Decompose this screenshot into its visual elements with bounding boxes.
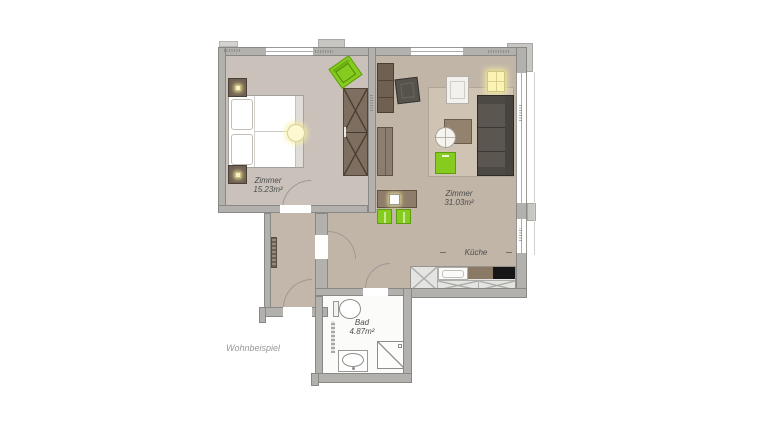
kitchen-label-dash [440, 252, 446, 253]
kitchen-label-dash [506, 252, 512, 253]
ceiling-lamp [287, 124, 305, 142]
coffee-table [435, 127, 456, 148]
window-bedroom-top [266, 47, 313, 56]
pillow [231, 99, 253, 130]
dimension-marks [519, 228, 522, 241]
kitchen-sink [438, 267, 468, 280]
floor-lamp [487, 71, 505, 92]
living-room-name: Zimmer [429, 189, 489, 198]
bedroom-room-area: 15.23m² [238, 185, 298, 194]
basin-bowl [342, 353, 364, 367]
bath-radiator [331, 321, 335, 353]
shelf-line [378, 97, 393, 98]
dimension-marks [224, 49, 240, 52]
wardrobe-door [344, 89, 367, 132]
pillow [231, 134, 253, 165]
cooktop [493, 267, 515, 279]
bedroom-room-name: Zimmer [238, 176, 298, 185]
living-label: Zimmer 31.03m² [429, 189, 489, 207]
sink-basin [442, 270, 464, 278]
chair-line [403, 212, 405, 223]
shower-head [398, 344, 402, 348]
wardrobe-handle [344, 127, 346, 137]
wall-living-bottom [403, 288, 527, 298]
sofa-backrest [505, 96, 513, 175]
toilet [333, 299, 363, 319]
wall-bath-stub [311, 373, 319, 386]
wall-divider [368, 47, 376, 213]
wardrobe-door [344, 132, 367, 175]
window-living-top [411, 47, 463, 56]
armchair-white [446, 76, 469, 104]
table-decor [389, 194, 400, 205]
dimension-marks [315, 50, 333, 53]
green-chair [396, 209, 411, 224]
hall-radiator [271, 237, 277, 268]
table-lamp [235, 85, 241, 91]
sofa-armrest [478, 96, 505, 104]
shelf-line [378, 80, 393, 81]
kitchen-label: Küche [448, 248, 504, 257]
nightstand [228, 78, 247, 97]
balcony-edge-line [534, 72, 535, 255]
basin-tap [352, 367, 355, 370]
wall-hall-stub [259, 307, 266, 323]
bedroom-label: Zimmer 15.23m² [238, 176, 298, 194]
bath-room-name: Bad [336, 318, 388, 327]
armchair-seat [400, 82, 415, 98]
armchair-gray [395, 77, 421, 105]
bath-room-area: 4.87m² [336, 327, 388, 336]
chair-line [384, 212, 386, 223]
counter-worktop-wood [468, 267, 493, 279]
sofa-armrest [478, 167, 505, 175]
cabinet-divider [385, 128, 386, 175]
toilet-bowl [339, 299, 361, 319]
door-opening-bath [363, 288, 388, 296]
wall-bath-left [315, 296, 323, 383]
green-chair [377, 209, 392, 224]
tall-cabinet [377, 63, 394, 113]
counter-segment [411, 267, 438, 290]
armchair-seat [450, 81, 465, 99]
plan-caption: Wohnbeispiel [226, 343, 280, 353]
sofa [477, 95, 514, 176]
door-opening-entry [283, 307, 312, 317]
kitchen-name: Küche [448, 248, 504, 257]
floor-plan: Zimmer 15.23m² Zimmer 31.03m² Küche Bad … [0, 0, 768, 421]
door-opening-bedroom [280, 205, 311, 213]
sofa-cushion-line [478, 127, 505, 128]
wall-bath-right [403, 288, 412, 383]
shower [377, 341, 405, 369]
wardrobe [343, 88, 368, 176]
wall-left [218, 47, 226, 213]
dining-table [377, 190, 417, 208]
green-sideboard [435, 152, 456, 174]
duvet-line [254, 96, 255, 167]
wall-hall-left [264, 213, 271, 317]
living-room-area: 31.03m² [429, 198, 489, 207]
dimension-marks [488, 50, 510, 53]
wall-bath-bottom [315, 373, 412, 383]
low-cabinet [377, 127, 393, 176]
door-opening-living [315, 235, 328, 259]
dimension-marks [519, 105, 522, 121]
washbasin [338, 350, 368, 372]
dimension-marks [370, 95, 373, 111]
sideboard-handle [442, 155, 449, 157]
bath-label: Bad 4.87m² [336, 318, 388, 336]
sofa-cushion-line [478, 151, 505, 152]
window-living-right-1 [516, 73, 527, 203]
